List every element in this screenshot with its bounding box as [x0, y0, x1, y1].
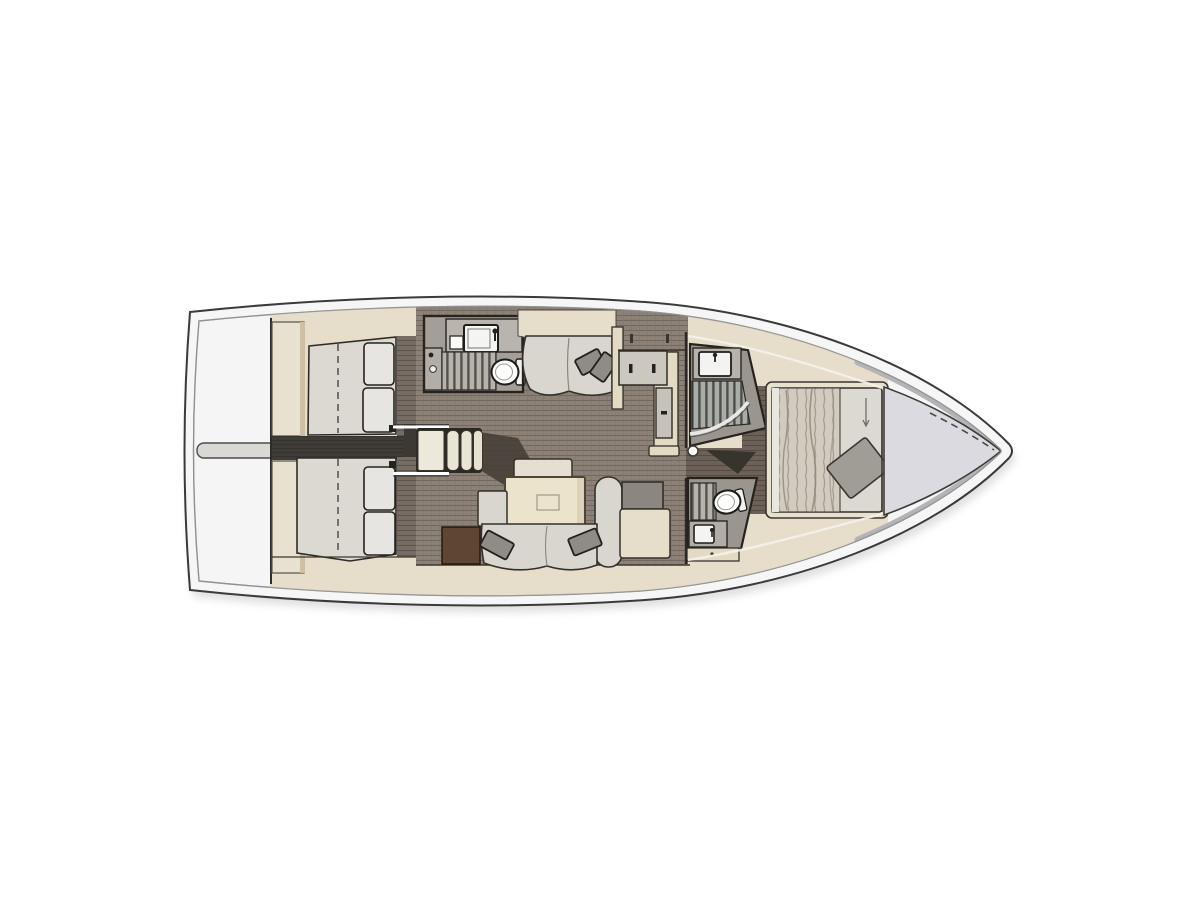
galley-handle-1 — [629, 364, 633, 373]
aft-head-soap-dish — [450, 336, 463, 349]
salon-table — [505, 477, 585, 529]
step-1 — [418, 431, 444, 471]
galley-handle-2 — [652, 364, 656, 373]
fwd-head-locker — [691, 483, 716, 520]
step-4 — [474, 431, 483, 471]
aft-head-shower-grate — [442, 352, 496, 390]
galley-band-handle-2 — [666, 334, 669, 343]
galley-end-cap — [649, 446, 679, 456]
starboard-berth-corner — [389, 461, 396, 468]
yacht-floorplan-page — [0, 0, 1200, 900]
nav-cabinet-dark — [622, 482, 663, 509]
sofa-left-arm — [478, 491, 507, 526]
brown-chest — [442, 527, 480, 564]
starboard-berth-cushion-1 — [364, 467, 395, 510]
bed-duvet — [772, 388, 840, 512]
step-3 — [461, 431, 472, 471]
aft-head-side-faucet — [429, 353, 434, 358]
aft-head-toilet — [492, 359, 526, 385]
port-berth-cushion-1 — [364, 343, 394, 385]
door-knob — [688, 446, 698, 456]
shower-grate — [692, 381, 750, 429]
yacht-floorplan-diagram — [0, 0, 1200, 900]
aft-head-side-knob — [430, 366, 437, 373]
salon-table-shade — [577, 478, 584, 528]
starboard-berth-cushion-2 — [364, 512, 395, 555]
step-2 — [447, 431, 459, 471]
sofa-chaise — [595, 477, 622, 567]
aft-passage-floor — [272, 436, 424, 460]
fwd-head-sink — [694, 525, 714, 543]
owners-cabin-bed — [766, 382, 890, 518]
bed-foot-trim — [772, 388, 779, 512]
wardrobe-port-edge — [300, 322, 305, 436]
aft-head — [424, 316, 525, 392]
wardrobe-port — [272, 322, 304, 436]
galley-handle-3 — [661, 411, 667, 415]
galley-band-handle-1 — [630, 334, 633, 343]
nav-seat — [620, 509, 670, 558]
galley-face-top — [619, 351, 667, 385]
